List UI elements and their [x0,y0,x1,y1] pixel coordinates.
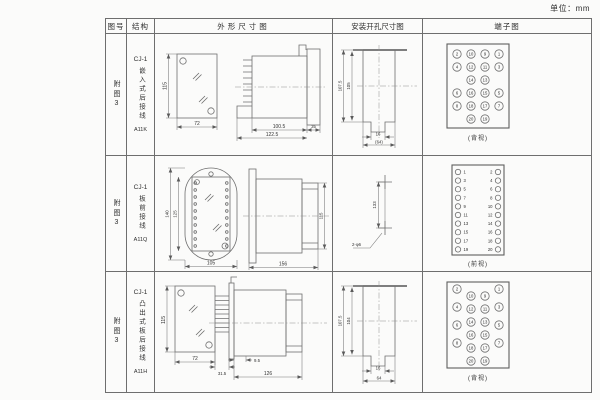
terminal-pins [243,60,252,102]
view-label: (背视) [468,374,488,382]
dim-label: (64) [375,140,383,145]
terminal-pins [215,296,229,332]
terminal-number: 2 [490,170,493,175]
terminal-number: 10 [469,294,474,299]
terminal-number: 18 [469,104,474,109]
terminal-number: 17 [483,346,488,351]
terminal-drawing-a11k: 2468101214161820911131517191357 (背视) [423,34,591,156]
hole-spec-label: 2-φ6 [352,242,362,247]
figure-cell-row2: 附图3 [106,156,127,272]
glass-hatch-icon [196,329,205,337]
side-view: 115 156 [243,169,329,270]
terminal-number: 9 [464,204,467,209]
model-code: A11K [134,127,147,133]
terminal-number: 16 [469,333,474,338]
outline-drawing-a11k: 115 72 100.5 35 [155,34,333,156]
figure-cell-row1: 附图3 [106,34,127,156]
mount-hole [180,58,186,64]
install-cell-row1: 107.5 105 16 (64) [333,34,423,156]
outline-cell-row1: 115 72 100.5 35 [155,34,333,156]
terminal-number: 14 [469,320,474,325]
terminal-number: 13 [464,221,469,226]
terminal-number: 10 [488,204,493,209]
dim-label: 104 [346,317,351,325]
glass-hatch-icon [205,194,214,202]
mount-hole [178,290,184,296]
terminal-number: 10 [469,52,474,57]
dim-label: 64 [377,376,382,381]
model-code: A11Q [134,237,148,243]
dim-label: 107.5 [338,315,343,326]
terminal-number: 16 [488,230,493,235]
terminal-number: 12 [488,213,493,218]
structure-label: 板前接线 [136,195,146,231]
figure-label: 附图3 [111,317,121,347]
terminal-number: 12 [469,307,474,312]
terminal-pin [495,169,500,174]
terminal-pin [455,247,460,252]
terminal-number: 7 [464,195,467,200]
terminal-number: 13 [483,320,488,325]
front-view: 115 72 [161,286,215,365]
terminal-drawing-a11q: 1357911131517192468101214161820 (前视) [423,156,591,272]
dim-label: 100.5 [273,124,286,130]
latch-hook [231,277,237,283]
figure-label: 附图3 [111,199,121,229]
terminal-number: 1 [464,170,467,175]
model-code: A11H [134,369,147,375]
terminal-pin [495,221,500,226]
dim-label: 125 [173,210,178,218]
dim-label: 126 [264,371,273,377]
install-drawing-a11h: 107.5 104 16 64 [333,272,423,392]
glass-hatch-icon [189,305,198,313]
terminal-pin [455,169,460,174]
header-terminal: 端子图 [423,19,591,34]
install-drawing-a11q: 133 2-φ6 [333,156,423,272]
terminal-number: 19 [483,117,488,122]
front-view: 140 125 105 [165,168,238,269]
terminal-cell-row2: 1357911131517192468101214161820 (前视) [423,156,591,272]
terminal-number: 8 [490,195,493,200]
terminal-number: 6 [490,187,493,192]
model-label: CJ-1 [134,56,148,63]
terminal-cell-row3: 2468101214161820911131517191357 (背视) [423,272,591,392]
glass-hatch-icon [199,96,208,104]
unit-label: 单位：mm [550,3,590,14]
terminal-number: 19 [483,359,488,364]
mount-hole [209,252,213,256]
terminal-number: 14 [469,78,474,83]
model-label: CJ-1 [134,289,148,296]
terminal-number: 15 [483,333,488,338]
terminal-number: 18 [469,346,474,351]
centerline [357,45,417,138]
dim-label: 115 [161,316,167,324]
terminal-pin [455,238,460,243]
glass-hatch-icon [213,224,222,232]
terminal-number: 14 [488,221,493,226]
model-label: CJ-1 [134,184,148,191]
dim-label: 16 [376,132,381,137]
figure-cell-row3: 附图3 [106,272,127,392]
terminal-number: 11 [483,307,488,312]
terminal-number: 20 [469,359,474,364]
outline-cell-row3: 115 72 9.5 [155,272,333,392]
terminal-number: 15 [464,230,469,235]
terminal-pin-grid: 1357911131517192468101214161820 [455,169,500,252]
terminal-pin [455,230,460,235]
outline-drawing-a11h: 115 72 9.5 [155,272,333,392]
terminal-number: 20 [488,247,493,252]
structure-cell-row1: CJ-1 嵌入式后接线 A11K [127,34,155,156]
terminal-pin [495,204,500,209]
figure-label: 附图3 [111,80,121,110]
terminal-number: 11 [464,213,469,218]
centerline [357,281,417,373]
terminal-number: 17 [483,104,488,109]
terminal-number: 5 [464,187,467,192]
terminal-pin [495,178,500,183]
dim-label: 16 [376,366,381,371]
dim-label: 140 [165,210,170,218]
dim-label: 35 [311,124,316,129]
side-view: 100.5 35 122.5 [235,45,327,141]
front-view: 115 72 [163,54,218,130]
terminal-pin [455,195,460,200]
terminal-number: 12 [469,65,474,70]
terminal-number: 4 [490,178,493,183]
structure-cell-row3: CJ-1 凸出式板后接线 A11H [127,272,155,392]
dim-label: 156 [279,262,288,268]
terminal-pin-grid: 2468101214161820911131517191357 [453,285,503,365]
mount-hole [206,342,212,348]
install-cell-row2: 133 2-φ6 [333,156,423,272]
dim-label: 133 [372,201,377,209]
terminal-number: 16 [469,91,474,96]
dim-label: 115 [163,82,169,90]
terminal-pin [455,178,460,183]
mount-hole [208,108,214,114]
glass-hatch-icon [193,73,202,81]
terminal-pin [455,187,460,192]
dim-label: 122.5 [266,132,279,138]
install-cell-row3: 107.5 104 16 64 [333,272,423,392]
header-figure: 图号 [106,19,127,34]
terminal-number: 20 [469,117,474,122]
terminal-cell-row1: 2468101214161820911131517191357 (背视) [423,34,591,156]
terminal-pin-grid: 2468101214161820911131517191357 [453,50,503,123]
terminal-drawing-a11h: 2468101214161820911131517191357 (背视) [423,272,591,392]
terminal-pin [495,230,500,235]
outline-cell-row2: 140 125 105 115 [155,156,333,272]
terminal-pin [495,195,500,200]
structure-label: 凸出式板后接线 [136,300,146,363]
dim-label: 107.5 [338,80,343,91]
header-install: 安装开孔尺寸图 [333,19,423,34]
dim-label: 72 [194,121,200,127]
terminal-number: 13 [483,78,488,83]
terminal-pin [495,247,500,252]
structure-cell-row2: CJ-1 板前接线 A11Q [127,156,155,272]
manual-page: 单位：mm 图号 结构 外形尺寸图 安装开孔尺寸图 端子图 附图3 CJ-1 嵌… [0,0,600,400]
view-label: (前视) [468,260,488,268]
dim-label: 31.5 [218,371,227,376]
dim-label: 105 [346,82,351,90]
side-view: 9.5 31.5 126 [209,277,327,380]
terminal-pin [495,212,500,217]
view-label: (背视) [468,134,488,142]
spec-table: 图号 结构 外形尺寸图 安装开孔尺寸图 端子图 附图3 CJ-1 嵌入式后接线 … [105,18,592,393]
terminal-pin [455,221,460,226]
dim-label: 115 [319,212,324,219]
terminal-pin [455,204,460,209]
dim-label: 105 [207,261,216,267]
header-outline: 外形尺寸图 [155,19,333,34]
mount-plate [229,283,234,359]
terminal-pin [495,187,500,192]
dim-label: 9.5 [254,358,261,363]
terminal-number: 11 [483,65,488,70]
latch-hook [299,45,306,56]
dim-label: 72 [192,356,198,362]
terminal-dots [194,182,228,248]
terminal-number: 17 [464,238,469,243]
terminal-pin [455,212,460,217]
outline-drawing-a11q: 140 125 105 115 [155,156,333,272]
terminal-number: 15 [483,91,488,96]
terminal-pin [495,238,500,243]
header-structure: 结构 [127,19,155,34]
terminal-number: 19 [464,247,469,252]
terminal-number: 18 [488,238,493,243]
structure-label: 嵌入式后接线 [136,67,146,121]
screw [222,243,228,249]
terminal-number: 3 [464,178,467,183]
mount-hole [209,172,213,176]
install-drawing-a11k: 107.5 105 16 (64) [333,34,423,156]
